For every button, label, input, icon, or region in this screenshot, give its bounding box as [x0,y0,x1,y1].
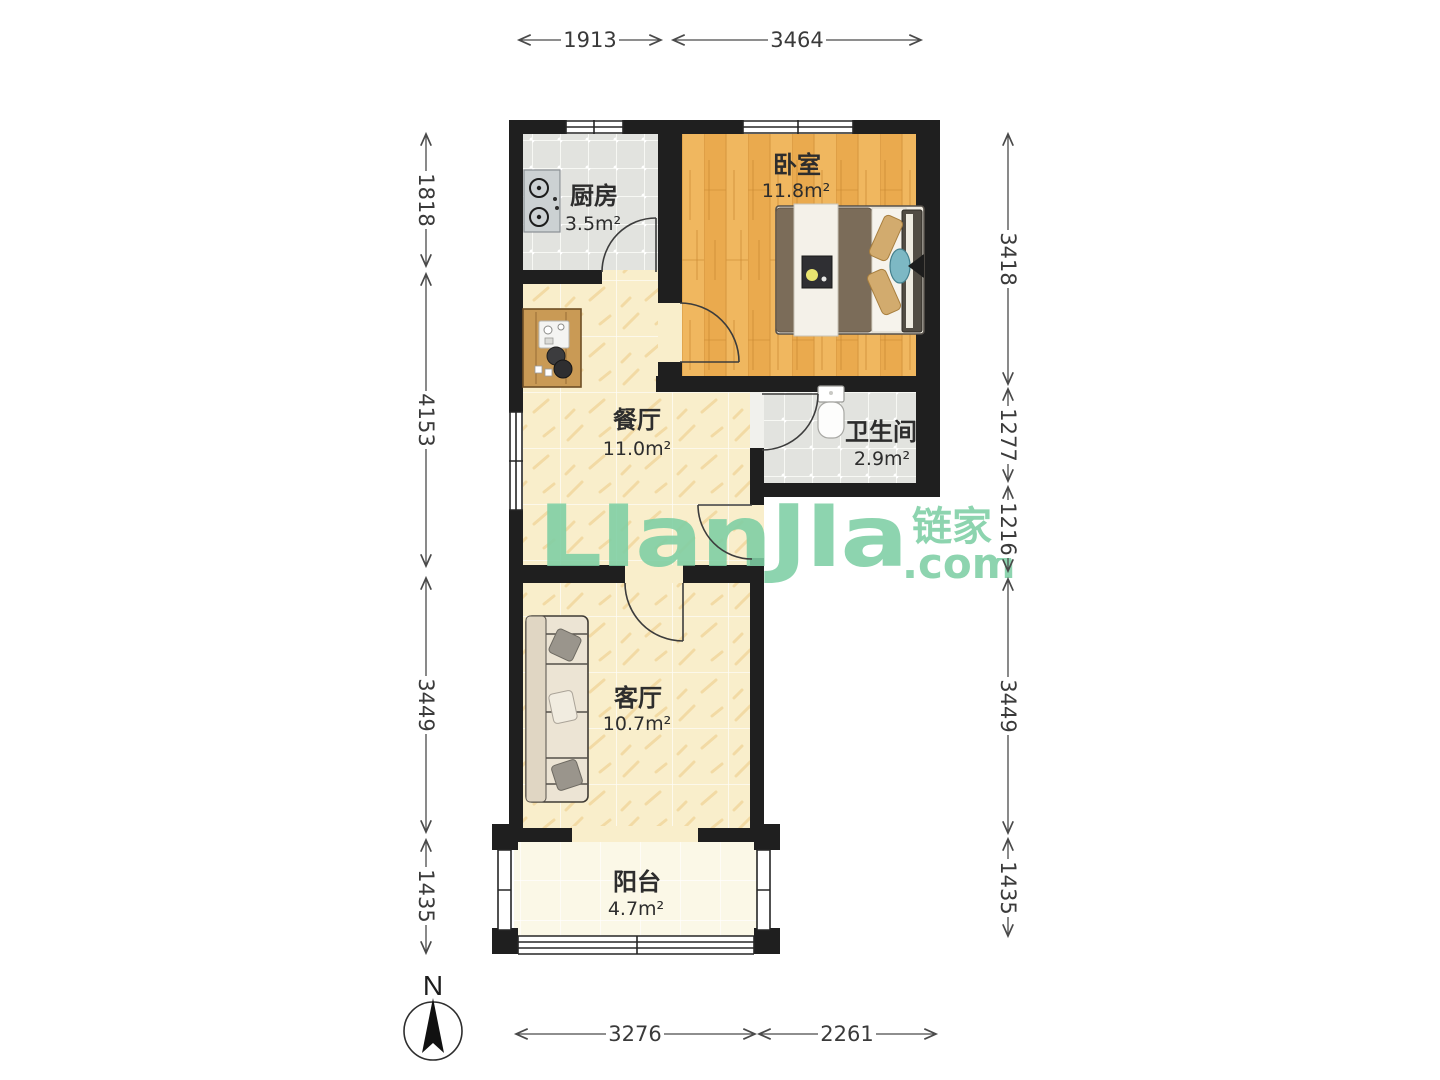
bedroom-area: 11.8m² [762,180,830,202]
svg-text:3276: 3276 [608,1022,661,1046]
dining-window [509,412,523,510]
svg-text:3418: 3418 [996,232,1020,285]
dim-left-1: 4153 [414,274,438,566]
dim-right-4: 1435 [996,839,1020,936]
room-label-kitchen: 厨房 3.5m² [565,182,621,235]
dim-right-3: 3449 [996,579,1020,833]
balcony-rail-left [498,850,511,930]
dim-bottom-0: 3276 [516,1022,755,1046]
bathroom-area: 2.9m² [854,448,910,470]
svg-text:1435: 1435 [996,861,1020,914]
room-label-bedroom: 卧室 11.8m² [762,151,830,202]
balcony-passage-gap [572,826,698,842]
wall-kitchen-bottom [509,270,602,284]
bedroom-name: 卧室 [773,151,821,179]
svg-text:2261: 2261 [820,1022,873,1046]
floorplan-canvas: LIanJIa 链家 .com [0,0,1440,1080]
dining-name: 餐厅 [613,406,661,434]
balcony-post-top-right [754,824,780,850]
svg-text:4153: 4153 [414,393,438,446]
wall-kitchen-bedroom-upper [658,120,682,303]
room-label-dining: 餐厅 11.0m² [603,406,671,460]
balcony-rail-bottom [518,936,754,954]
dim-right-1: 1277 [996,389,1020,481]
bedroom-door-gap [658,303,682,362]
svg-text:3449: 3449 [996,679,1020,732]
compass-north-label: N [423,970,443,1001]
svg-text:3464: 3464 [770,28,823,52]
balcony-rail-right [757,850,770,930]
sofa-icon [526,616,588,802]
stove-icon [524,170,560,232]
kitchen-name: 厨房 [570,182,618,210]
living-area: 10.7m² [603,713,671,735]
balcony-area: 4.7m² [608,898,664,920]
svg-text:3449: 3449 [414,678,438,731]
room-label-living: 客厅 10.7m² [603,684,671,735]
dim-left-0: 1818 [414,134,438,266]
dining-table-icon [523,309,581,387]
watermark-logo-text: LIanJIa [538,487,906,587]
room-label-bathroom: 卫生间 2.9m² [845,418,917,470]
svg-text:1435: 1435 [414,869,438,922]
balcony-post-bottom-left [492,928,518,954]
balcony-post-bottom-right [754,928,780,954]
wall-bedroom-bottom [656,376,916,392]
balcony-post-top-left [492,824,518,850]
wall-living-right [750,565,764,842]
dim-bottom-1: 2261 [759,1022,936,1046]
compass-icon: N [404,970,462,1060]
kitchen-area: 3.5m² [565,213,621,235]
dim-top-0: 1913 [519,28,661,52]
balcony-name: 阳台 [613,868,661,896]
dim-left-3: 1435 [414,840,438,953]
svg-text:1216: 1216 [996,502,1020,555]
kitchen-window [566,120,623,134]
wall-living-bottom-left [509,828,572,842]
svg-text:1913: 1913 [563,28,616,52]
dim-top-1: 3464 [673,28,921,52]
bathroom-name: 卫生间 [845,418,917,446]
toilet-icon [818,386,844,438]
bedroom-window [743,120,853,134]
dining-area: 11.0m² [603,438,671,460]
living-name: 客厅 [614,684,662,712]
compass-needle [422,998,444,1053]
svg-text:1818: 1818 [414,173,438,226]
dim-left-2: 3449 [414,578,438,832]
svg-text:1277: 1277 [996,408,1020,461]
room-label-balcony: 阳台 4.7m² [608,868,664,920]
bathroom-door-gap [750,392,764,448]
floorplan-page: LIanJIa 链家 .com [0,0,1440,1080]
dim-right-0: 3418 [996,134,1020,384]
bed-icon [776,204,924,336]
watermark: LIanJIa 链家 .com [538,487,1015,588]
